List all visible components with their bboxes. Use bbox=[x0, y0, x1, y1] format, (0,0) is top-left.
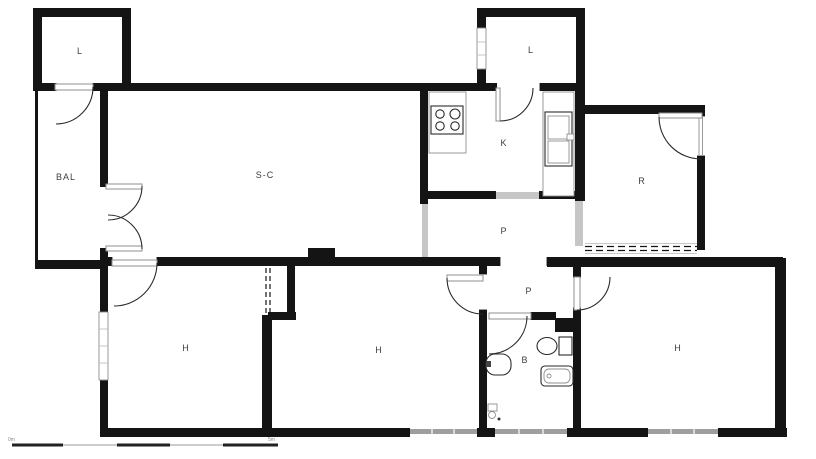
scale-bar: 0m 5m bbox=[8, 437, 278, 447]
room-label-laundry-center: L bbox=[528, 45, 534, 55]
jamb bbox=[501, 257, 547, 266]
burner bbox=[451, 122, 459, 130]
window-bar bbox=[495, 429, 567, 434]
wall-segment bbox=[531, 312, 556, 320]
wall-segment bbox=[428, 191, 496, 199]
stove-icon bbox=[429, 92, 466, 153]
wall-segment bbox=[575, 91, 585, 201]
wall-pillar bbox=[555, 318, 573, 332]
door-leaf bbox=[55, 84, 93, 90]
toilet-icon bbox=[537, 337, 572, 355]
wall-pillar bbox=[308, 248, 335, 258]
room-label-hall-upper: P bbox=[500, 226, 507, 236]
door-leaf bbox=[489, 313, 531, 319]
window-bar bbox=[410, 429, 477, 434]
walls bbox=[33, 8, 787, 437]
door-leaf bbox=[106, 184, 142, 189]
door-swing bbox=[577, 277, 610, 310]
wall-segment bbox=[33, 8, 131, 17]
fixture-part bbox=[488, 404, 497, 411]
balcony-rail bbox=[35, 88, 38, 263]
jamb bbox=[697, 117, 705, 156]
scale-bar-segment bbox=[12, 444, 63, 447]
passage-livingroom-hall bbox=[422, 204, 428, 257]
room-label-kitchen: K bbox=[500, 138, 507, 148]
room-label-balcony: BAL bbox=[56, 172, 76, 182]
bidet-tap bbox=[486, 361, 491, 367]
wall-segment bbox=[157, 257, 500, 266]
scale-end-label: 5m bbox=[268, 437, 275, 443]
wall-segment bbox=[33, 8, 42, 90]
window-laundry-top-center bbox=[477, 28, 486, 69]
room-labels: L L BAL S-C K R P P H H B H bbox=[56, 45, 682, 365]
window-bedroom-right bbox=[648, 429, 718, 434]
room-label-bedroom-middle: H bbox=[375, 345, 383, 355]
room-label-laundry-left: L bbox=[77, 46, 83, 56]
window-bedroom-left bbox=[99, 312, 108, 380]
bathtub-icon bbox=[541, 366, 573, 386]
passage-kitchen-hall bbox=[496, 192, 539, 199]
door-swing bbox=[56, 87, 93, 124]
closet-sliding-door bbox=[266, 268, 270, 315]
wall-segment bbox=[547, 257, 783, 267]
wall-segment bbox=[100, 83, 108, 187]
fixture-part bbox=[489, 412, 496, 419]
wall-segment bbox=[573, 266, 581, 278]
room-label-bedroom-left: H bbox=[182, 343, 190, 353]
open-passages bbox=[422, 192, 583, 257]
door-leaf bbox=[659, 113, 702, 118]
wall-segment bbox=[100, 380, 108, 437]
room-label-room-r: R bbox=[638, 176, 646, 186]
scale-start-label: 0m bbox=[8, 437, 15, 443]
wall-segment bbox=[477, 8, 486, 28]
wall-segment bbox=[573, 307, 581, 437]
sink-basin bbox=[548, 141, 569, 163]
drain-fixture-icon bbox=[488, 404, 501, 421]
floor-plan: L L BAL S-C K R P P H H B H 0m 5m bbox=[0, 0, 816, 459]
room-label-bathroom: B bbox=[521, 355, 528, 365]
bidet-icon bbox=[486, 354, 511, 375]
door-swing bbox=[447, 278, 483, 314]
bathroom-fixtures bbox=[486, 337, 573, 421]
door-leaf bbox=[106, 246, 142, 251]
toilet-tank bbox=[559, 337, 572, 355]
faucet bbox=[567, 134, 574, 140]
burner bbox=[436, 122, 444, 130]
door-swing bbox=[659, 117, 701, 159]
door-swing bbox=[500, 88, 533, 121]
wall-segment bbox=[477, 8, 585, 17]
room-label-hall-lower: P bbox=[525, 286, 532, 296]
scale-bar-segment bbox=[223, 444, 278, 447]
burner bbox=[436, 110, 444, 118]
wall-segment bbox=[100, 266, 108, 312]
door-leaf bbox=[112, 260, 157, 266]
door-leaf bbox=[496, 88, 500, 121]
sink-basin bbox=[548, 116, 569, 139]
tub-drain bbox=[547, 374, 551, 378]
wall-segment bbox=[100, 428, 410, 437]
fixture-dot bbox=[498, 418, 501, 421]
wall-segment bbox=[420, 83, 428, 204]
burner bbox=[450, 109, 460, 119]
wall-segment bbox=[576, 8, 585, 91]
wall-segment bbox=[479, 262, 487, 274]
wall-segment bbox=[775, 258, 786, 437]
door-swing bbox=[114, 263, 157, 306]
room-label-living-dining: S-C bbox=[256, 170, 275, 180]
wall-segment bbox=[479, 310, 487, 437]
doors bbox=[55, 84, 702, 354]
window-bar bbox=[648, 429, 718, 434]
window-frame bbox=[477, 28, 486, 69]
wall-segment bbox=[697, 155, 705, 250]
door-leaf bbox=[574, 277, 580, 310]
opening-edge bbox=[585, 244, 697, 254]
room-r-open-passage bbox=[585, 247, 697, 251]
window-bedroom-middle bbox=[410, 429, 477, 434]
toilet-bowl bbox=[537, 338, 557, 355]
scale-bar-segment bbox=[117, 444, 170, 447]
wall-segment bbox=[287, 262, 295, 320]
room-label-bedroom-right: H bbox=[674, 343, 682, 353]
wall-segment bbox=[262, 315, 272, 437]
wall-segment bbox=[477, 69, 486, 91]
wall-segment bbox=[122, 8, 131, 87]
floor-plan-canvas: L L BAL S-C K R P P H H B H 0m 5m bbox=[0, 0, 816, 459]
door-jambs bbox=[57, 83, 706, 320]
kitchen-sink-icon bbox=[543, 92, 574, 196]
wall-segment bbox=[35, 260, 108, 269]
wall-segment bbox=[93, 83, 497, 91]
passage-hall-room-r bbox=[575, 201, 583, 246]
window-bathroom bbox=[495, 429, 567, 434]
door-swing bbox=[489, 316, 527, 354]
door-leaf bbox=[447, 275, 483, 281]
